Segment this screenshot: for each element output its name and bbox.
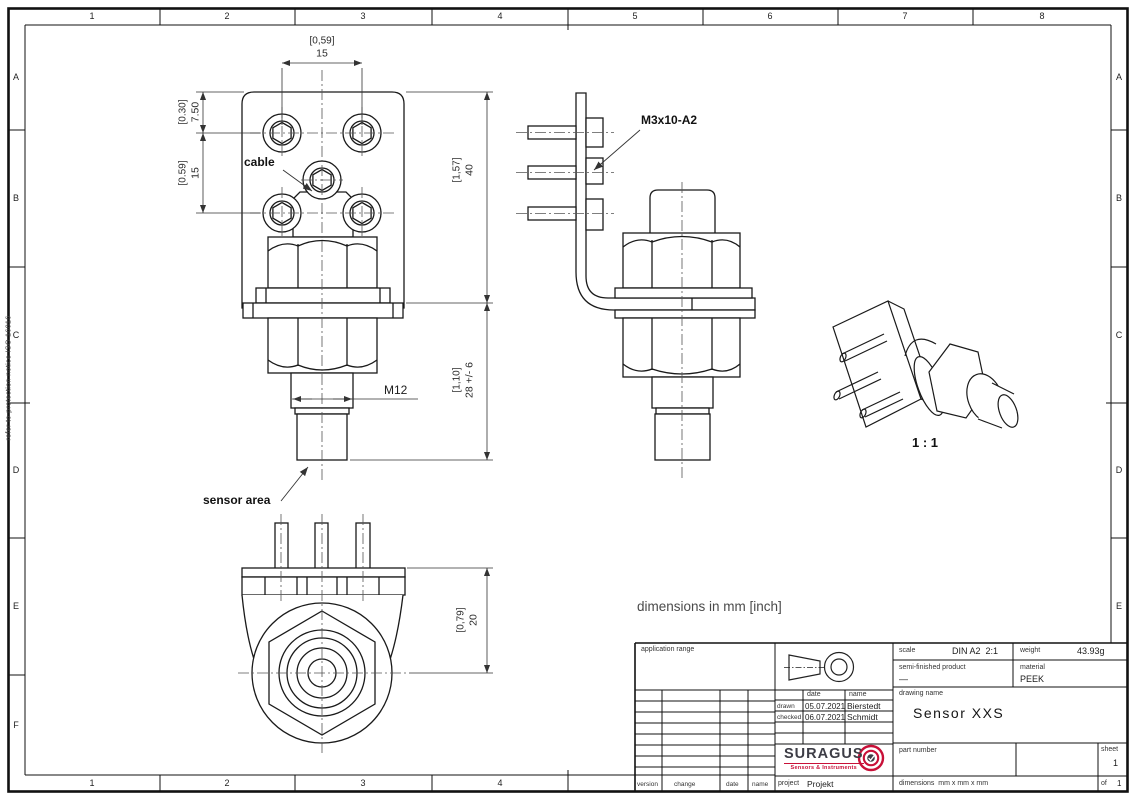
protection-notice: refer to protection notice ISO 16016 xyxy=(6,315,13,440)
date-header: date xyxy=(807,691,821,698)
cable-label: cable xyxy=(244,155,275,169)
grid-col-label: 1 xyxy=(89,11,94,21)
rev-name-label: name xyxy=(752,781,768,788)
checked-date: 06.07.2021 xyxy=(805,713,845,722)
bottom-view xyxy=(242,523,405,743)
dim-bottom-right: [0,79] 20 xyxy=(456,607,481,632)
grid-row-label: B xyxy=(13,193,19,203)
rev-version-label: version xyxy=(637,781,658,788)
grid-row-label: A xyxy=(13,72,19,82)
of-value: 1 xyxy=(1117,779,1121,788)
drawn-date: 05.07.2021 xyxy=(805,702,845,711)
part-number-label: part number xyxy=(899,747,937,754)
weight-value: 43.93g xyxy=(1077,646,1105,656)
rev-date-label: date xyxy=(726,781,739,788)
projection-symbol xyxy=(784,653,854,682)
suragus-logo: SURAGUS Sensors & Instruments xyxy=(780,744,890,775)
material-label: material xyxy=(1020,664,1045,671)
dim-front-right-upper: [1,57] 40 xyxy=(452,157,477,182)
of-label: of xyxy=(1101,780,1107,787)
rev-change-label: change xyxy=(674,781,695,788)
sensor-area-label: sensor area xyxy=(203,493,270,507)
grid-row-label: E xyxy=(1116,601,1122,611)
dim-front-right-lower: [1,10] 28 +/- 6 xyxy=(452,362,477,398)
grid-col-label: 5 xyxy=(632,11,637,21)
sheet-label: sheet xyxy=(1101,746,1118,753)
suragus-logo-tagline: Sensors & Instruments xyxy=(784,763,864,771)
grid-col-label: 2 xyxy=(224,11,229,21)
drawn-name: Bierstedt xyxy=(847,701,881,711)
dim-front-left-upper: [0.30] 7.50 xyxy=(178,99,203,124)
drawing-name: Sensor XXS xyxy=(913,705,1004,721)
grid-col-label: 4 xyxy=(497,778,502,788)
grid-col-label: 3 xyxy=(360,778,365,788)
grid-col-label: 3 xyxy=(360,11,365,21)
suragus-logo-text: SURAGUS xyxy=(784,747,864,762)
grid-col-label: 2 xyxy=(224,778,229,788)
grid-row-label: B xyxy=(1116,193,1122,203)
application-range-label: application range xyxy=(641,646,694,653)
drawn-label: drawn xyxy=(777,703,795,710)
front-view xyxy=(242,92,404,460)
semi-finished-value: — xyxy=(899,674,908,684)
grid-row-label: E xyxy=(13,601,19,611)
grid-col-label: 7 xyxy=(902,11,907,21)
side-view xyxy=(528,93,755,460)
grid-row-label: A xyxy=(1116,72,1122,82)
drawing-sheet: 1 2 3 4 5 6 7 8 1 2 3 4 A B C D E F A B … xyxy=(0,0,1136,800)
drawing-name-label: drawing name xyxy=(899,690,943,697)
weight-label: weight xyxy=(1020,647,1040,654)
name-header: name xyxy=(849,691,867,698)
grid-row-label: D xyxy=(1116,465,1123,475)
grid-row-label: F xyxy=(13,720,19,730)
material-value: PEEK xyxy=(1020,674,1044,684)
grid-col-label: 6 xyxy=(767,11,772,21)
grid-row-label: C xyxy=(1116,330,1123,340)
checked-name: Schmidt xyxy=(847,712,878,722)
m12-label: M12 xyxy=(384,383,407,397)
project-label: project xyxy=(778,780,799,787)
grid-col-label: 8 xyxy=(1039,11,1044,21)
iso-view xyxy=(833,301,1022,430)
dim-front-left-lower: [0.59] 15 xyxy=(178,160,203,185)
scale-label: scale xyxy=(899,647,915,654)
dimensions-unit-label: dimensions mm x mm x mm xyxy=(899,780,988,787)
sheet-value: 1 xyxy=(1113,758,1118,768)
units-note: dimensions in mm [inch] xyxy=(637,599,782,614)
semi-finished-label: semi-finished product xyxy=(899,664,966,671)
project-value: Projekt xyxy=(807,779,833,789)
drawing-geometry xyxy=(0,0,1136,800)
checked-label: checked xyxy=(777,714,801,721)
m3-screws-label: M3x10-A2 xyxy=(641,113,697,127)
grid-col-label: 4 xyxy=(497,11,502,21)
dim-front-top: [0,59] 15 xyxy=(309,36,334,61)
grid-row-label: D xyxy=(13,465,20,475)
iso-scale-label: 1 : 1 xyxy=(912,435,938,450)
scale-value: DIN A2 2:1 xyxy=(952,646,998,656)
grid-col-label: 1 xyxy=(89,778,94,788)
grid-row-label: C xyxy=(13,330,20,340)
